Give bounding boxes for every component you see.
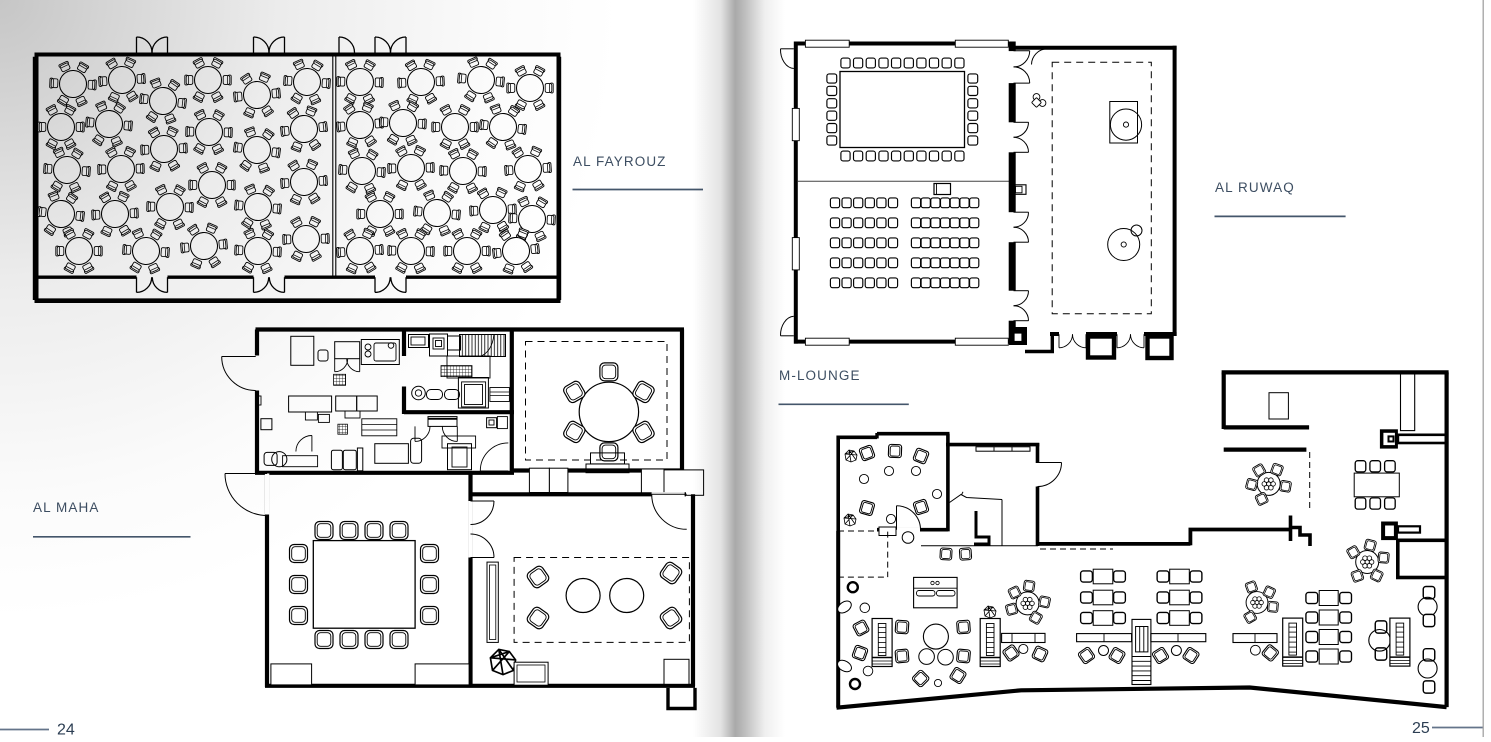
svg-text:25: 25 bbox=[1412, 720, 1430, 737]
svg-text:M-LOUNGE: M-LOUNGE bbox=[779, 368, 861, 383]
svg-text:AL RUWAQ: AL RUWAQ bbox=[1215, 180, 1295, 195]
